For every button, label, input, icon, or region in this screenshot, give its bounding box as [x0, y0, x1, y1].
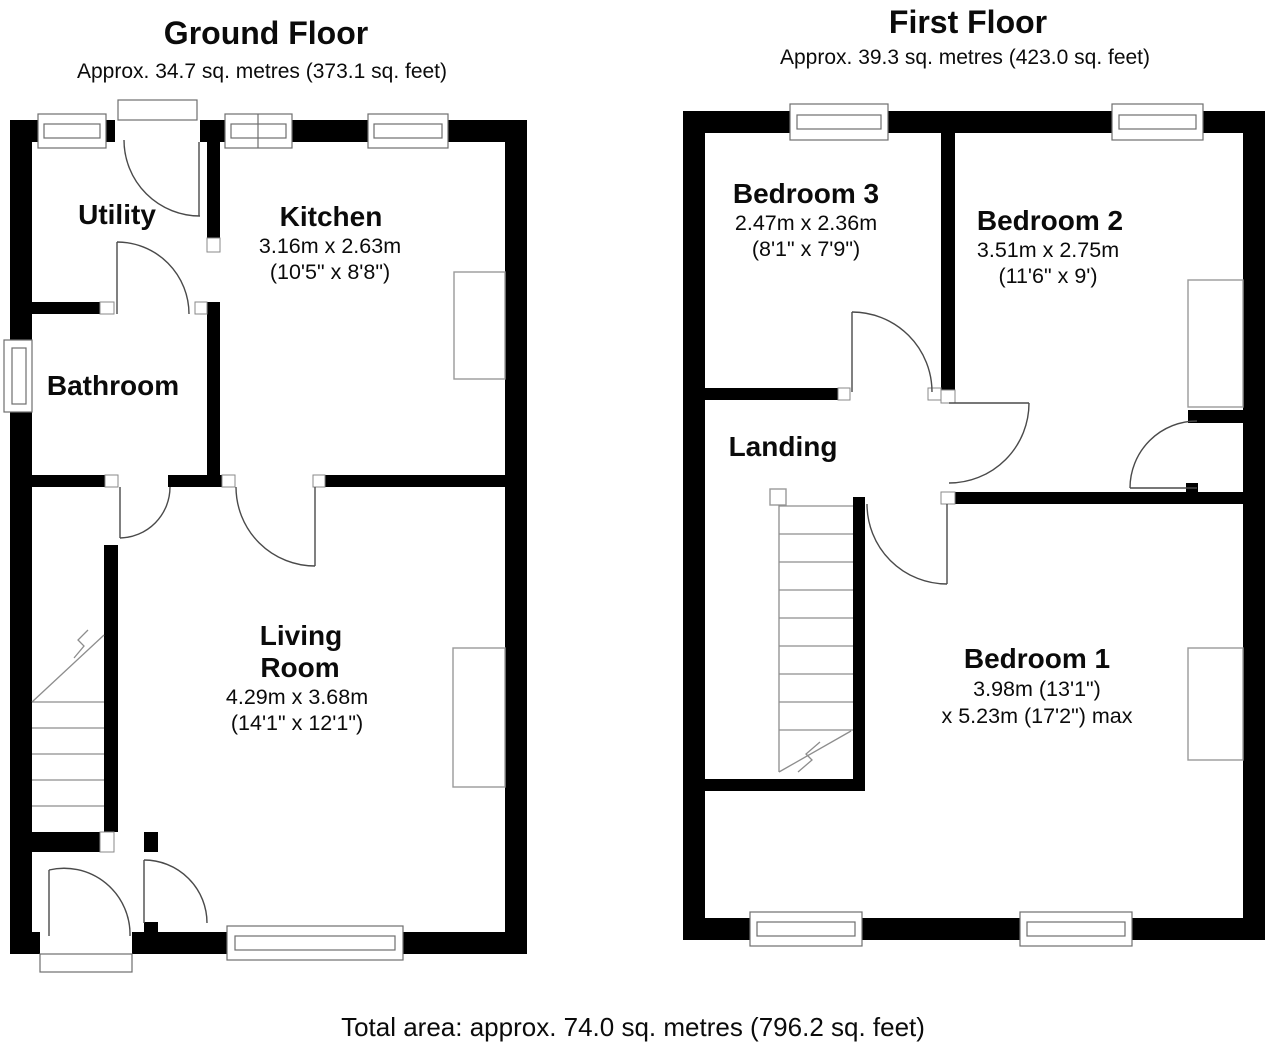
bedroom1-dims-line1: 3.98m (13'1") — [973, 677, 1101, 701]
bedroom3-dims-metric: 2.47m x 2.36m — [735, 211, 877, 235]
first-floor-title: First Floor — [889, 4, 1047, 40]
first-floor-subtitle: Approx. 39.3 sq. metres (423.0 sq. feet) — [780, 46, 1150, 69]
first-floor-stairs — [770, 489, 853, 772]
living-room-label-line2: Room — [260, 652, 339, 683]
first-floor-doors — [852, 312, 1197, 584]
floorplan-diagram: Ground Floor Approx. 34.7 sq. metres (37… — [0, 0, 1272, 1049]
living-room-label-line1: Living — [260, 620, 342, 651]
bedroom2-inner-door — [1130, 421, 1197, 488]
bedroom2-landing-door — [949, 403, 1029, 483]
floorplan-page: Ground Floor Approx. 34.7 sq. metres (37… — [0, 0, 1272, 1049]
kitchen-dims-imperial: (10'5" x 8'8") — [270, 260, 390, 284]
ground-floor-title: Ground Floor — [164, 15, 368, 51]
total-area-text: Total area: approx. 74.0 sq. metres (796… — [341, 1012, 925, 1042]
first-floor-bottom-window-right — [1020, 912, 1132, 946]
first-floor-fixtures — [1188, 280, 1243, 760]
bedroom1-wardrobe — [1188, 648, 1243, 760]
entrance-step — [40, 954, 132, 972]
bedroom2-dims-imperial: (11'6" x 9') — [998, 264, 1097, 288]
kitchen-window-right — [368, 114, 448, 148]
porch-outer-door — [49, 868, 130, 936]
kitchen-living-door — [236, 487, 315, 566]
utility-label: Utility — [78, 199, 156, 230]
bedroom3-door — [852, 312, 932, 392]
bedroom2-dims-metric: 3.51m x 2.75m — [977, 238, 1119, 262]
kitchen-counter — [454, 272, 505, 379]
first-floor-bottom-window-left — [750, 912, 862, 946]
living-room-window — [227, 926, 403, 960]
bedroom3-window — [790, 104, 888, 140]
bathroom-window — [4, 340, 32, 412]
first-floor-exterior-walls — [683, 111, 1265, 940]
bedroom2-window — [1112, 104, 1203, 140]
ground-floor-fixtures — [453, 272, 505, 787]
ground-floor-interior-walls — [32, 142, 505, 932]
bathroom-door — [117, 242, 189, 314]
bedroom2-label: Bedroom 2 — [977, 205, 1123, 236]
bedroom1-label: Bedroom 1 — [964, 643, 1110, 674]
bedroom3-dims-imperial: (8'1" x 7'9") — [752, 237, 860, 261]
porch-inner-door — [144, 860, 207, 923]
kitchen-label: Kitchen — [280, 201, 383, 232]
living-room-dims-metric: 4.29m x 3.68m — [226, 685, 368, 709]
living-room-dims-imperial: (14'1" x 12'1") — [231, 711, 363, 735]
bedroom3-label: Bedroom 3 — [733, 178, 879, 209]
bedroom2-wardrobe — [1188, 280, 1243, 407]
kitchen-dims-metric: 3.16m x 2.63m — [259, 234, 401, 258]
ground-floor-stairs — [32, 630, 104, 806]
stairs-newel-post — [770, 489, 786, 505]
landing-label: Landing — [729, 431, 838, 462]
hall-door — [120, 487, 170, 538]
utility-window — [38, 114, 106, 148]
kitchen-window-left — [225, 114, 292, 148]
bedroom1-dims-line2: x 5.23m (17'2") max — [942, 704, 1133, 728]
bedroom1-door — [867, 504, 947, 584]
living-room-unit — [453, 648, 505, 787]
ground-floor-subtitle: Approx. 34.7 sq. metres (373.1 sq. feet) — [77, 60, 447, 83]
first-floor-plan: First Floor Approx. 39.3 sq. metres (423… — [683, 4, 1265, 946]
ground-floor-plan: Ground Floor Approx. 34.7 sq. metres (37… — [4, 15, 527, 972]
bathroom-label: Bathroom — [47, 370, 179, 401]
